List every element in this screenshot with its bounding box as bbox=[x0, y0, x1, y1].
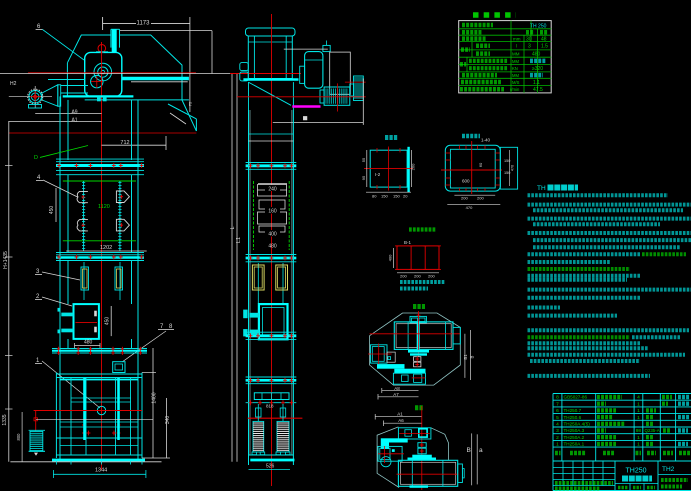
svg-text:150: 150 bbox=[381, 194, 388, 199]
svg-text:480: 480 bbox=[268, 244, 277, 250]
svg-text:1173: 1173 bbox=[137, 21, 151, 27]
svg-text:≥320: ≥320 bbox=[532, 66, 543, 72]
svg-text:TH250A.1: TH250A.1 bbox=[564, 442, 585, 447]
svg-text:KN: KN bbox=[512, 66, 518, 71]
svg-text:1.1: 1.1 bbox=[533, 80, 540, 86]
svg-text:B-1: B-1 bbox=[404, 240, 412, 245]
svg-text:48: 48 bbox=[541, 37, 547, 43]
svg-text:818: 818 bbox=[266, 404, 274, 409]
svg-text:TH250.6: TH250.6 bbox=[564, 415, 582, 420]
svg-text:400: 400 bbox=[388, 254, 393, 261]
svg-text:L1: L1 bbox=[236, 237, 242, 243]
svg-text:A1: A1 bbox=[397, 411, 403, 416]
svg-text:MM: MM bbox=[512, 73, 519, 78]
svg-text:1335: 1335 bbox=[2, 414, 8, 425]
svg-text:1120: 1120 bbox=[98, 204, 110, 210]
svg-text:A8: A8 bbox=[394, 386, 400, 391]
svg-text:A1: A1 bbox=[71, 117, 77, 123]
svg-text:H2: H2 bbox=[10, 81, 17, 87]
svg-text:200: 200 bbox=[477, 196, 484, 201]
svg-text:2: 2 bbox=[556, 435, 559, 441]
svg-text:4: 4 bbox=[556, 422, 559, 428]
svg-text:200: 200 bbox=[461, 196, 468, 201]
svg-text:3: 3 bbox=[528, 44, 531, 50]
svg-text:H+1435: H+1435 bbox=[3, 251, 9, 269]
svg-text:450: 450 bbox=[49, 206, 55, 215]
svg-text:6: 6 bbox=[556, 408, 559, 414]
svg-text:mm: mm bbox=[513, 37, 521, 42]
svg-text:95: 95 bbox=[361, 175, 366, 180]
svg-text:55: 55 bbox=[361, 157, 366, 162]
svg-text:TH250.7: TH250.7 bbox=[564, 408, 582, 413]
svg-text:200: 200 bbox=[400, 273, 407, 278]
svg-text:1-40: 1-40 bbox=[481, 138, 491, 143]
svg-text:240: 240 bbox=[268, 186, 277, 192]
svg-text:1344: 1344 bbox=[95, 468, 107, 474]
svg-text:D: D bbox=[34, 155, 38, 161]
svg-text:I-2: I-2 bbox=[375, 172, 381, 177]
svg-text:480: 480 bbox=[84, 340, 93, 346]
svg-text:TH250A.2: TH250A.2 bbox=[564, 435, 585, 440]
svg-text:4: 4 bbox=[637, 395, 640, 401]
svg-text:M/S: M/S bbox=[512, 80, 520, 85]
svg-text:800: 800 bbox=[16, 433, 21, 441]
svg-text:200: 200 bbox=[414, 273, 421, 278]
svg-text:30: 30 bbox=[526, 37, 532, 43]
svg-text:B: B bbox=[470, 355, 475, 358]
svg-text:60: 60 bbox=[478, 162, 483, 167]
svg-text:400: 400 bbox=[268, 232, 277, 238]
svg-text:TH2: TH2 bbox=[662, 466, 675, 473]
svg-text:1: 1 bbox=[637, 408, 640, 414]
svg-text:Q235-A: Q235-A bbox=[645, 428, 660, 433]
svg-text:A9: A9 bbox=[71, 109, 77, 115]
svg-text:TH250A.3: TH250A.3 bbox=[564, 428, 585, 433]
svg-text:1400: 1400 bbox=[152, 392, 158, 403]
svg-text:L: L bbox=[230, 226, 236, 229]
svg-text:340: 340 bbox=[165, 416, 171, 425]
svg-text:TH250A.4(5): TH250A.4(5) bbox=[564, 422, 591, 427]
svg-text:TH: TH bbox=[537, 185, 546, 192]
svg-text:B: B bbox=[467, 447, 471, 454]
svg-text:75: 75 bbox=[188, 101, 193, 106]
svg-text:7: 7 bbox=[556, 401, 559, 407]
svg-text:526: 526 bbox=[266, 464, 275, 470]
svg-text:8: 8 bbox=[556, 395, 559, 401]
svg-text:l: l bbox=[516, 44, 517, 49]
svg-text:MM: MM bbox=[512, 52, 520, 57]
svg-text:1: 1 bbox=[637, 442, 640, 448]
svg-text:200: 200 bbox=[428, 273, 435, 278]
svg-text:A7: A7 bbox=[393, 392, 399, 397]
svg-text:GB5027-86: GB5027-86 bbox=[564, 395, 588, 400]
svg-text:5: 5 bbox=[556, 415, 559, 421]
svg-text:1.5: 1.5 bbox=[541, 44, 548, 50]
svg-text:1202: 1202 bbox=[100, 245, 112, 251]
svg-text:1: 1 bbox=[637, 415, 640, 421]
svg-text:B1: B1 bbox=[463, 354, 468, 360]
svg-text:480: 480 bbox=[532, 52, 541, 58]
svg-text:98: 98 bbox=[636, 428, 642, 434]
svg-text:TH 250: TH 250 bbox=[530, 23, 547, 29]
svg-text:470: 470 bbox=[511, 165, 515, 171]
svg-text:1: 1 bbox=[556, 442, 559, 448]
svg-text:1: 1 bbox=[637, 401, 640, 407]
svg-text:80: 80 bbox=[372, 194, 377, 199]
svg-text:1: 1 bbox=[637, 435, 640, 441]
svg-text:r/min: r/min bbox=[510, 87, 520, 92]
svg-text:TH250: TH250 bbox=[625, 468, 646, 475]
svg-text:A6: A6 bbox=[398, 418, 404, 423]
svg-text:160: 160 bbox=[268, 209, 277, 215]
svg-text:MM: MM bbox=[512, 59, 519, 64]
svg-text:470: 470 bbox=[466, 205, 473, 210]
svg-text:600: 600 bbox=[462, 179, 470, 184]
svg-text:150: 150 bbox=[393, 194, 400, 199]
svg-text:450: 450 bbox=[105, 317, 111, 326]
svg-text:20: 20 bbox=[403, 194, 408, 199]
svg-text:3: 3 bbox=[556, 428, 559, 434]
svg-text:47.5: 47.5 bbox=[533, 87, 543, 93]
svg-text:260: 260 bbox=[411, 163, 416, 170]
svg-text:a: a bbox=[479, 447, 483, 454]
